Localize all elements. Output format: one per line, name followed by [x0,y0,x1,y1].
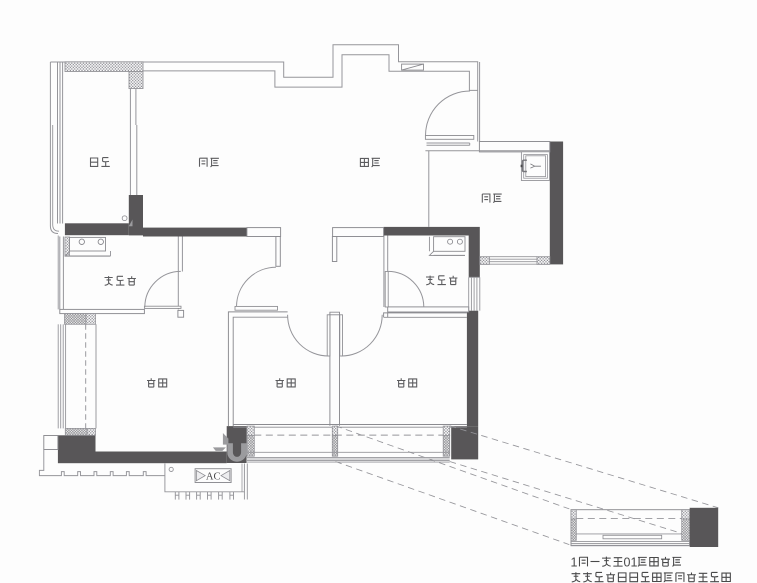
svg-text:01: 01 [624,555,638,569]
svg-text:AC: AC [206,471,221,482]
svg-text:1: 1 [571,555,578,569]
